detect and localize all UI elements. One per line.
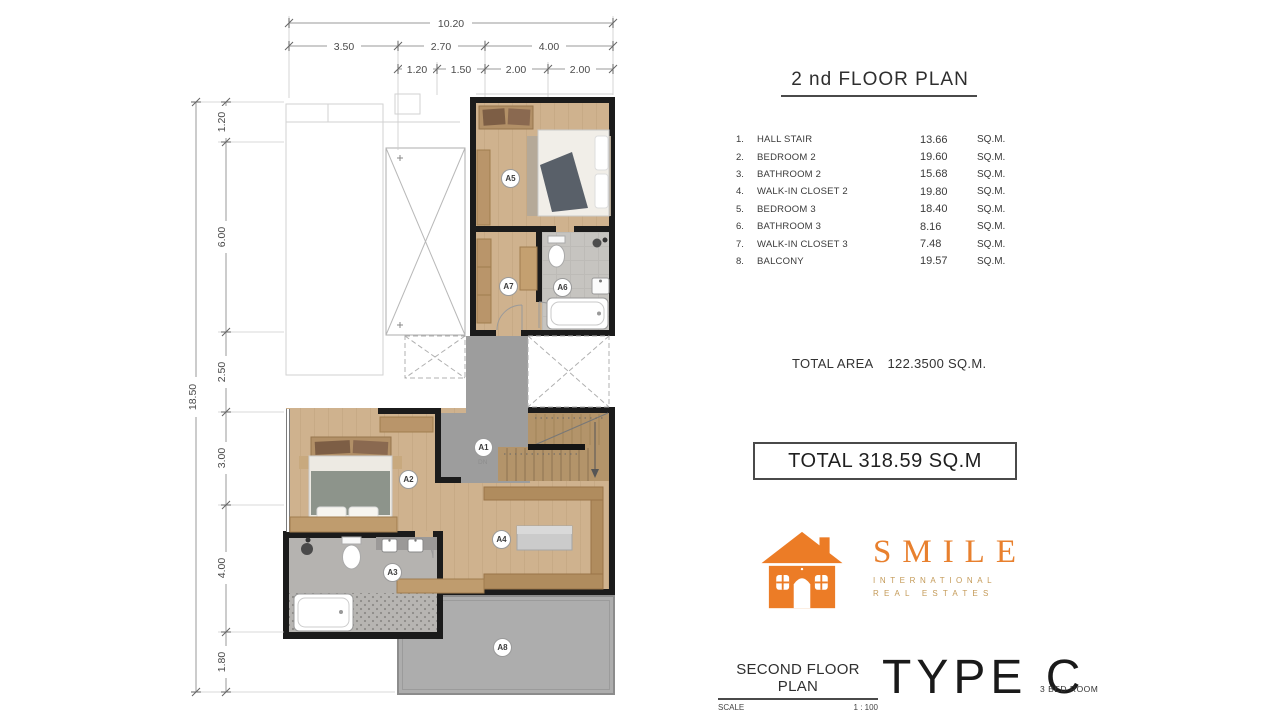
- plan-linework: 10.20 3.50 2.70 4.00 1.20 1.50 2.00 2.00…: [0, 0, 690, 716]
- room-area: 19.80: [920, 186, 977, 198]
- footer-plan-block: SECOND FLOOR PLAN SCALE 1 : 100: [718, 661, 878, 712]
- room-label-walk-in-closet-3: A7: [499, 277, 518, 296]
- scale-value: 1 : 100: [854, 703, 878, 712]
- room-name: BATHROOM 3: [757, 221, 920, 232]
- logo-brand: SMILE: [873, 536, 1027, 569]
- table-row: 7. WALK-IN CLOSET 3 7.48 SQ.M.: [736, 235, 1022, 252]
- room-unit: SQ.M.: [977, 204, 1022, 215]
- bedroom-3-furniture: [477, 106, 611, 225]
- room-area: 15.68: [920, 168, 977, 180]
- room-area: 13.66: [920, 134, 977, 146]
- room-label-bathroom-2: A3: [383, 563, 402, 582]
- row-number: 6.: [736, 221, 757, 232]
- svg-text:1.80: 1.80: [216, 652, 228, 673]
- row-number: 8.: [736, 256, 757, 267]
- row-number: 2.: [736, 152, 757, 163]
- svg-text:1.50: 1.50: [451, 64, 472, 76]
- room-unit: SQ.M.: [977, 221, 1022, 232]
- table-row: 5. BEDROOM 3 18.40 SQ.M.: [736, 201, 1022, 218]
- row-number: 3.: [736, 169, 757, 180]
- table-row: 6. BATHROOM 3 8.16 SQ.M.: [736, 218, 1022, 235]
- room-area-table: 1. HALL STAIR 13.66 SQ.M. 2. BEDROOM 2 1…: [736, 131, 1022, 270]
- row-number: 5.: [736, 204, 757, 215]
- svg-text:4.00: 4.00: [216, 558, 228, 579]
- table-row: 1. HALL STAIR 13.66 SQ.M.: [736, 131, 1022, 148]
- svg-text:2.00: 2.00: [570, 64, 591, 76]
- svg-text:3.50: 3.50: [334, 41, 355, 53]
- svg-text:18.50: 18.50: [187, 384, 199, 410]
- room-unit: SQ.M.: [977, 169, 1022, 180]
- room-name: BEDROOM 2: [757, 152, 920, 163]
- room-unit: SQ.M.: [977, 134, 1022, 145]
- stair-railing: [528, 444, 585, 450]
- room-label-bathroom-3: A6: [553, 278, 572, 297]
- floor-plan-sheet: 10.20 3.50 2.70 4.00 1.20 1.50 2.00 2.00…: [0, 0, 1280, 716]
- house-icon: [756, 526, 848, 614]
- room-area: 19.57: [920, 255, 977, 267]
- svg-text:2.70: 2.70: [431, 41, 452, 53]
- svg-text:3.00: 3.00: [216, 448, 228, 469]
- room-name: WALK-IN CLOSET 2: [757, 186, 920, 197]
- svg-text:2.50: 2.50: [216, 362, 228, 383]
- svg-text:6.00: 6.00: [216, 227, 228, 248]
- void-dashed-openings: [405, 336, 609, 407]
- room-unit: SQ.M.: [977, 186, 1022, 197]
- room-area: 19.60: [920, 151, 977, 163]
- logo-text: SMILE INTERNATIONAL REAL ESTATES: [873, 526, 1027, 614]
- scale-label: SCALE: [718, 703, 744, 712]
- room-name: HALL STAIR: [757, 134, 920, 145]
- room-label-bedroom-3: A5: [501, 169, 520, 188]
- total-area-label: TOTAL AREA: [792, 356, 874, 371]
- table-row: 2. BEDROOM 2 19.60 SQ.M.: [736, 148, 1022, 165]
- svg-text:1.20: 1.20: [407, 64, 428, 76]
- footer-scale-row: SCALE 1 : 100: [718, 703, 878, 712]
- room-label-bedroom-2: A2: [399, 470, 418, 489]
- page-title: 2 nd FLOOR PLAN: [760, 69, 1000, 91]
- room-unit: SQ.M.: [977, 256, 1022, 267]
- footer-divider: [718, 698, 878, 700]
- table-row: 3. BATHROOM 2 15.68 SQ.M.: [736, 166, 1022, 183]
- room-name: BATHROOM 2: [757, 169, 920, 180]
- room-area: 18.40: [920, 203, 977, 215]
- footer-plan-name: SECOND FLOOR PLAN: [718, 661, 878, 695]
- table-row: 4. WALK-IN CLOSET 2 19.80 SQ.M.: [736, 183, 1022, 200]
- room-name: WALK-IN CLOSET 3: [757, 239, 920, 250]
- grand-total-box: TOTAL 318.59 SQ.M: [753, 442, 1017, 480]
- room-area: 8.16: [920, 221, 977, 233]
- room-unit: SQ.M.: [977, 239, 1022, 250]
- logo-subtitle-2: REAL ESTATES: [873, 589, 1027, 598]
- row-number: 1.: [736, 134, 757, 145]
- room-area: 7.48: [920, 238, 977, 250]
- row-number: 4.: [736, 186, 757, 197]
- table-row: 8. BALCONY 19.57 SQ.M.: [736, 253, 1022, 270]
- company-logo: SMILE INTERNATIONAL REAL ESTATES: [756, 526, 1027, 614]
- total-area-line: TOTAL AREA 122.3500 SQ.M.: [792, 356, 986, 371]
- svg-text:4.00: 4.00: [539, 41, 560, 53]
- type-label: TYPE C: [882, 650, 1085, 705]
- room-unit: SQ.M.: [977, 152, 1022, 163]
- room-name: BALCONY: [757, 256, 920, 267]
- svg-text:1.20: 1.20: [216, 112, 228, 133]
- svg-text:2.00: 2.00: [506, 64, 527, 76]
- title-underline: [781, 95, 977, 97]
- grand-total-label: TOTAL 318.59 SQ.M: [788, 450, 982, 473]
- void-opening: [386, 148, 465, 335]
- logo-subtitle-1: INTERNATIONAL: [873, 576, 1027, 585]
- staircase: [504, 413, 608, 481]
- svg-text:10.20: 10.20: [438, 18, 464, 30]
- total-area-value: 122.3500 SQ.M.: [888, 356, 987, 371]
- room-name: BEDROOM 3: [757, 204, 920, 215]
- room-label-walk-in-closet-2: A4: [492, 530, 511, 549]
- room-label-balcony: A8: [493, 638, 512, 657]
- room-label-hall-stair: A1: [474, 438, 493, 457]
- bedroom-count-label: 3 BED ROOM: [1040, 684, 1098, 694]
- row-number: 7.: [736, 239, 757, 250]
